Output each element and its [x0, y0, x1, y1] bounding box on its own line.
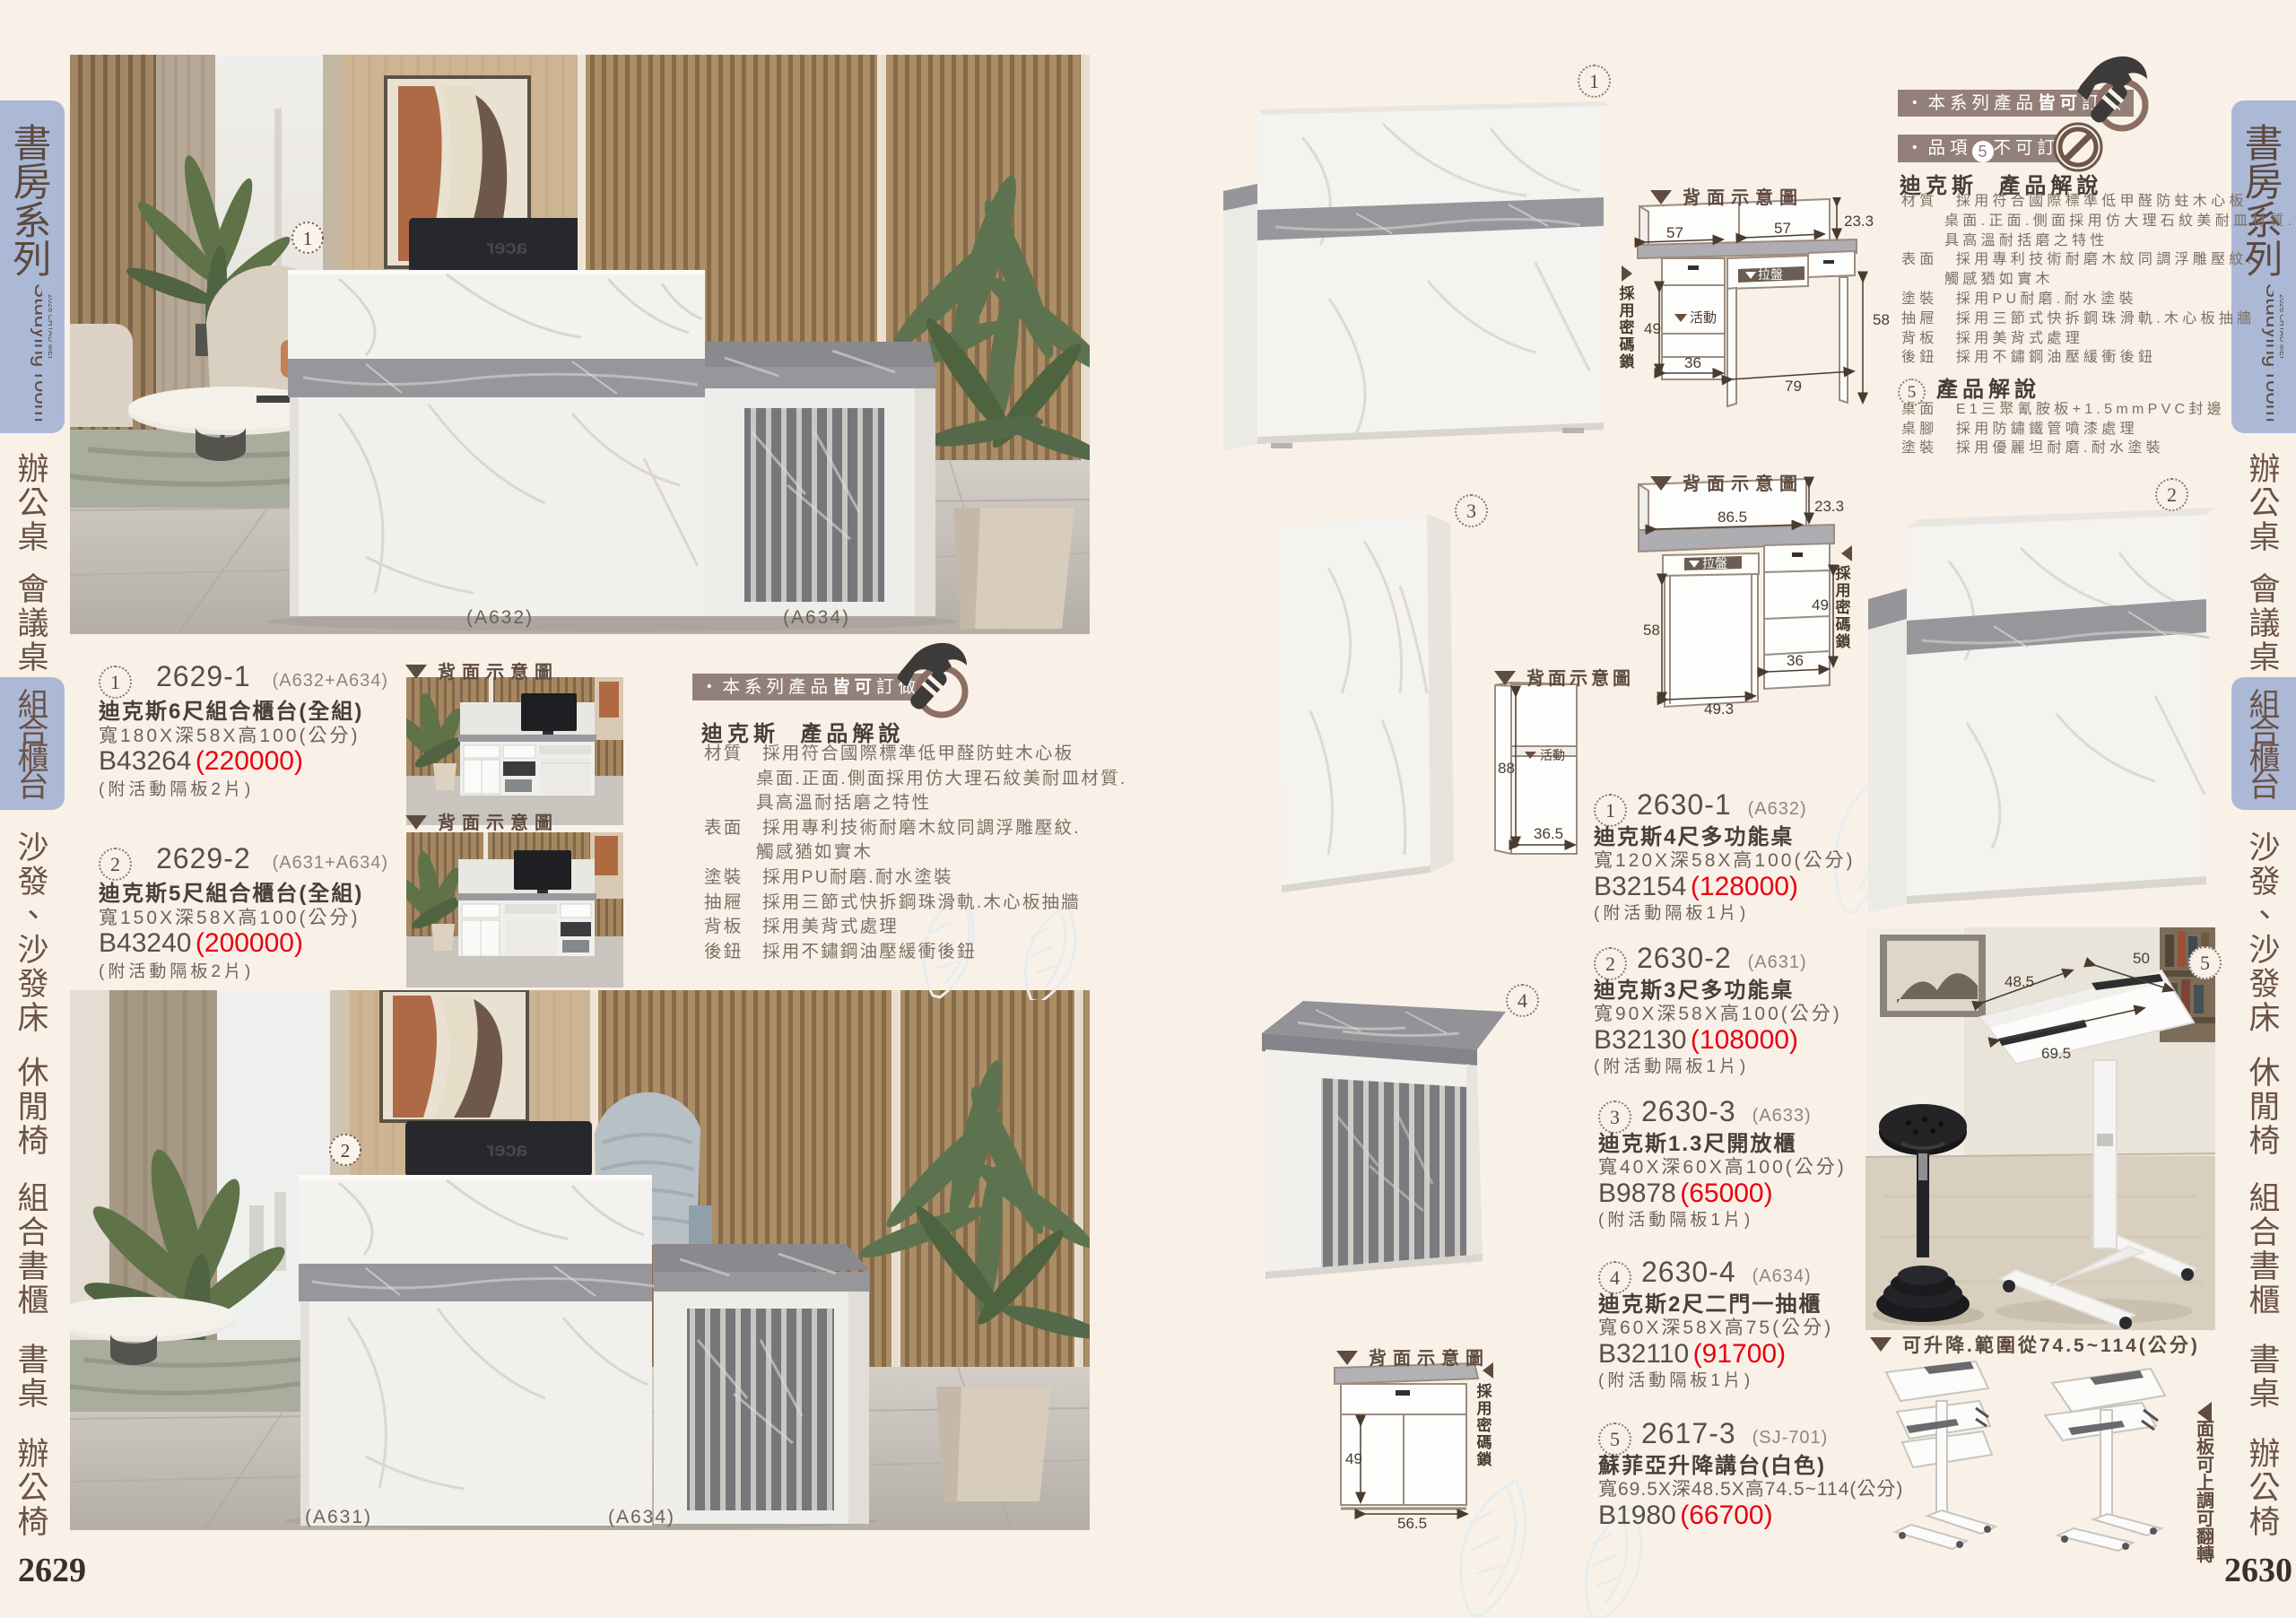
svg-text:活動: 活動 [1690, 310, 1717, 326]
svg-text:69.5: 69.5 [2041, 1045, 2071, 1062]
svg-text:36: 36 [1787, 652, 1804, 669]
svg-text:(A634): (A634) [608, 1507, 675, 1527]
svg-text:48.5: 48.5 [2005, 973, 2034, 990]
svg-text:(A631): (A631) [305, 1507, 372, 1527]
svg-text:23.3: 23.3 [1844, 213, 1874, 230]
svg-text:acer: acer [486, 236, 527, 258]
svg-text:活動: 活動 [1540, 748, 1565, 762]
svg-text:(A632): (A632) [466, 607, 534, 628]
svg-text:86.5: 86.5 [1718, 509, 1747, 526]
svg-text:88: 88 [1498, 760, 1515, 777]
svg-text:49.3: 49.3 [1704, 700, 1734, 718]
svg-text:(A634): (A634) [783, 607, 850, 628]
svg-text:50: 50 [2133, 950, 2150, 967]
svg-text:49: 49 [1812, 596, 1829, 613]
svg-text:58: 58 [1873, 311, 1890, 328]
svg-text:拉盤: 拉盤 [1702, 556, 1727, 570]
svg-text:拉盤: 拉盤 [1758, 267, 1783, 282]
svg-text:acer: acer [486, 1138, 527, 1161]
svg-text:2026 CHYAU MEI: 2026 CHYAU MEI [47, 294, 52, 359]
svg-text:36.5: 36.5 [1534, 825, 1563, 842]
svg-text:49: 49 [1345, 1450, 1362, 1467]
svg-text:49: 49 [1644, 320, 1661, 337]
svg-text:2026 CHYAU MEI: 2026 CHYAU MEI [2278, 294, 2283, 359]
svg-text:Studying room: Studying room [30, 283, 42, 422]
svg-text:56.5: 56.5 [1397, 1515, 1427, 1532]
svg-text:58: 58 [1643, 622, 1660, 639]
svg-text:23.3: 23.3 [1814, 498, 1844, 515]
svg-text:2: 2 [341, 1140, 351, 1161]
svg-text:1: 1 [303, 228, 313, 249]
svg-text:57: 57 [1774, 220, 1791, 237]
svg-text:57: 57 [1666, 224, 1683, 241]
svg-text:79: 79 [1785, 378, 1802, 395]
svg-text:36: 36 [1684, 354, 1701, 371]
svg-text:Studying room: Studying room [2261, 283, 2274, 422]
